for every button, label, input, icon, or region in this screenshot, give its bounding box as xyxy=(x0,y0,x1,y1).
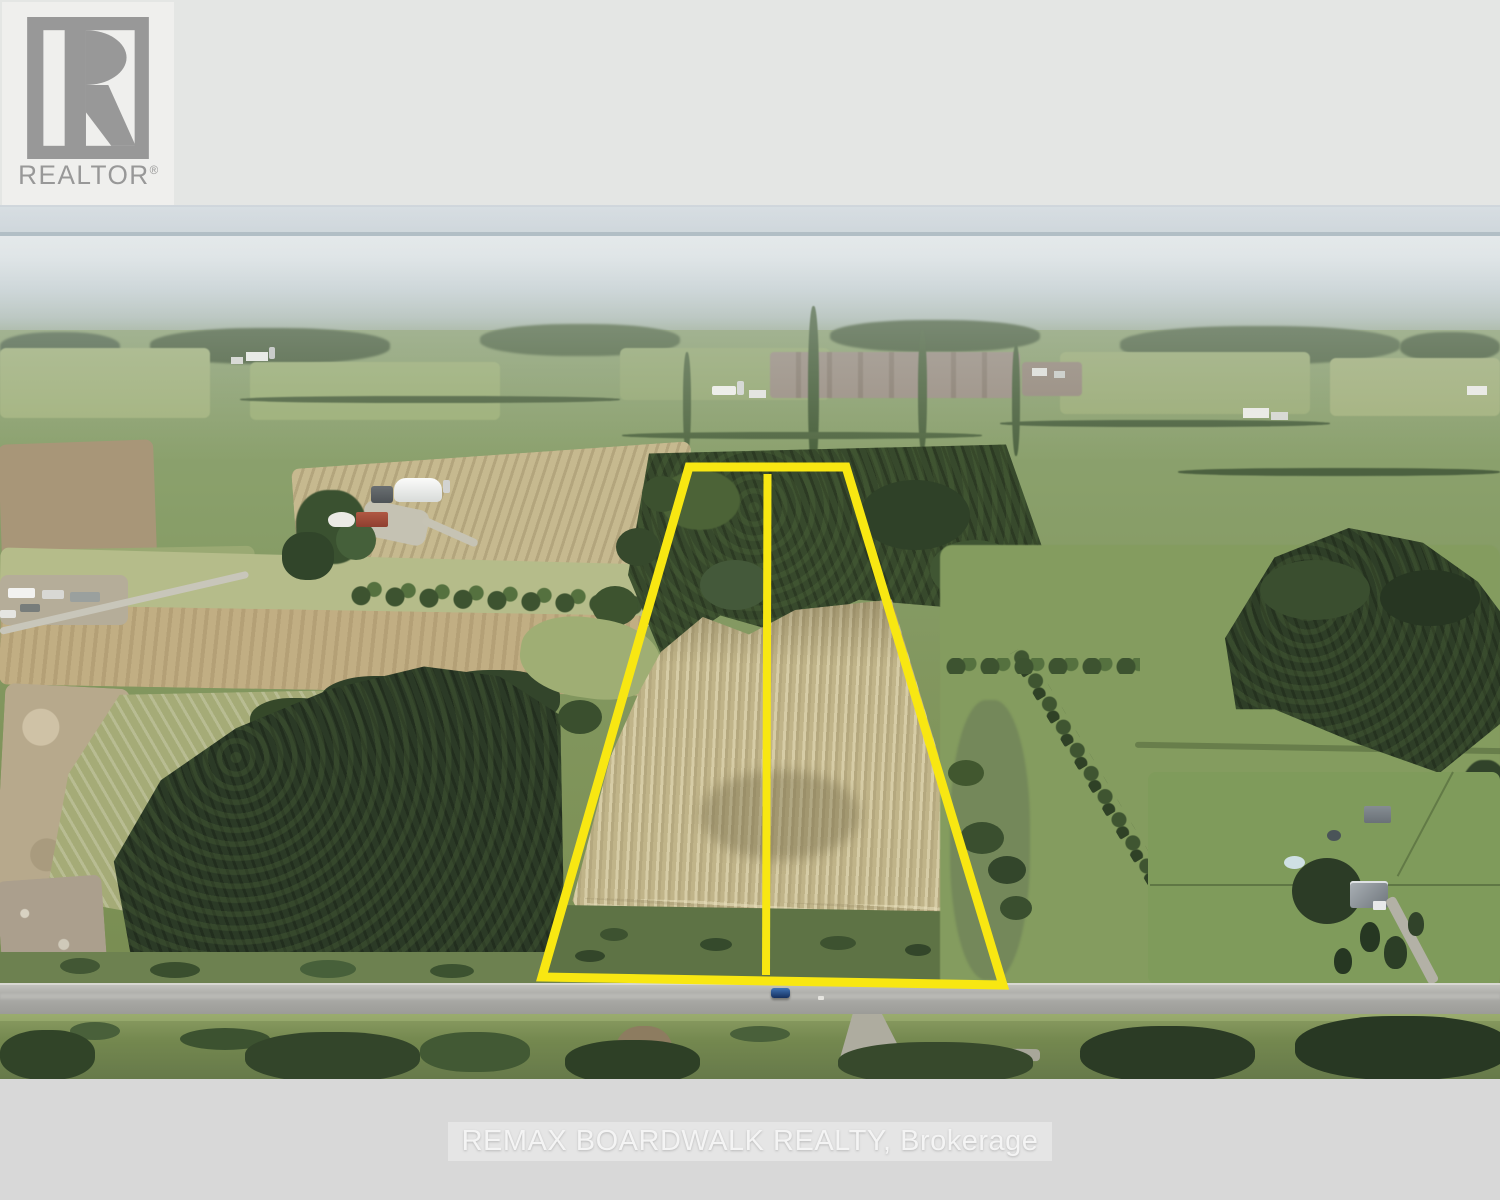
boundary-trees xyxy=(558,700,602,734)
hedgerow xyxy=(1000,420,1330,427)
shrub-line xyxy=(945,658,1140,674)
forest-canopy xyxy=(700,560,770,610)
forest-canopy xyxy=(1260,560,1370,620)
rural-road xyxy=(0,983,1500,1016)
tree-clump xyxy=(1295,1016,1500,1080)
distant-field xyxy=(250,362,500,420)
distant-farm-building xyxy=(1054,371,1065,378)
aerial-photo: REALTOR® xyxy=(0,0,1500,1080)
boundary-trees xyxy=(988,856,1026,884)
realtor-logo: REALTOR® xyxy=(2,2,174,205)
bush xyxy=(430,964,474,978)
distant-farm-building xyxy=(1467,386,1487,395)
tree-cluster xyxy=(282,532,334,580)
bush xyxy=(300,960,356,978)
car-on-road xyxy=(771,988,790,998)
verge-grass-strip xyxy=(0,1014,1500,1021)
forest-canopy xyxy=(860,480,970,550)
distant-farm-building xyxy=(1271,412,1288,420)
conifer-tree xyxy=(1384,936,1407,969)
bush xyxy=(820,936,856,950)
silo xyxy=(443,480,450,493)
tree-clump xyxy=(1080,1026,1255,1080)
registered-trademark-symbol: ® xyxy=(149,163,158,177)
red-barn xyxy=(356,512,388,527)
bush xyxy=(600,928,628,941)
realtor-logo-text: REALTOR® xyxy=(18,160,158,191)
hedgerow xyxy=(1178,468,1500,476)
distant-silo xyxy=(737,381,744,395)
bush xyxy=(60,958,100,974)
tree-clump xyxy=(565,1040,700,1080)
horizon-glow xyxy=(0,236,1500,332)
sky-overexposed-band xyxy=(0,0,1500,207)
road-marker xyxy=(818,996,824,1000)
distant-farm-building xyxy=(749,390,766,398)
distant-forest xyxy=(830,320,1040,352)
boundary-trees xyxy=(616,528,660,566)
bush xyxy=(730,1026,790,1042)
distant-farm-building xyxy=(712,386,736,395)
bush xyxy=(150,962,200,978)
distant-field xyxy=(0,348,210,418)
real-estate-aerial-photo: REALTOR® REMAX BOARDWALK REALTY, Brokera… xyxy=(0,0,1500,1200)
realtor-block-r-icon xyxy=(27,17,149,159)
hedgerow xyxy=(622,432,982,439)
trampoline xyxy=(1327,830,1341,841)
distant-farm-building xyxy=(246,352,268,361)
bush xyxy=(575,950,605,962)
distant-plowed-field xyxy=(1022,362,1082,396)
distant-silo xyxy=(269,347,275,359)
watermark-row: REMAX BOARDWALK REALTY, Brokerage xyxy=(0,1122,1500,1161)
bush xyxy=(905,944,931,956)
plowed-field xyxy=(0,439,157,560)
road-wear-stripe xyxy=(0,994,1500,999)
hedgerow xyxy=(1012,344,1020,456)
parcel-road-verge xyxy=(543,900,1003,984)
field-shadow xyxy=(700,770,860,860)
hedgerow xyxy=(240,396,620,403)
bush xyxy=(700,938,732,951)
quonset-barn xyxy=(394,478,442,502)
distant-farm-building xyxy=(1032,368,1047,376)
distant-field xyxy=(1060,352,1310,414)
tree-clump xyxy=(838,1042,1033,1080)
boundary-trees xyxy=(960,822,1004,854)
boundary-trees xyxy=(1000,896,1032,920)
parked-trailer xyxy=(8,588,35,598)
tree-clump xyxy=(420,1032,530,1072)
distant-farm-building xyxy=(1243,408,1269,418)
distant-farm-building xyxy=(231,357,243,364)
conifer-tree xyxy=(1408,912,1424,936)
forest-canopy xyxy=(1380,570,1480,626)
boundary-trees xyxy=(642,476,682,512)
parked-vehicle xyxy=(20,604,40,612)
parked-trailer xyxy=(42,590,64,599)
barn xyxy=(371,486,393,503)
porch xyxy=(1373,901,1386,910)
conifer-tree xyxy=(1360,922,1380,952)
tent-building xyxy=(328,512,355,527)
shed xyxy=(1364,806,1391,823)
parked-truck xyxy=(70,592,100,602)
parked-vehicle xyxy=(0,610,16,618)
tree-clump xyxy=(0,1030,95,1080)
hedgerow xyxy=(808,306,819,472)
tree-clump xyxy=(245,1032,420,1080)
conifer-tree xyxy=(1334,948,1352,974)
brokerage-watermark: REMAX BOARDWALK REALTY, Brokerage xyxy=(448,1122,1053,1161)
boundary-trees xyxy=(948,760,984,786)
